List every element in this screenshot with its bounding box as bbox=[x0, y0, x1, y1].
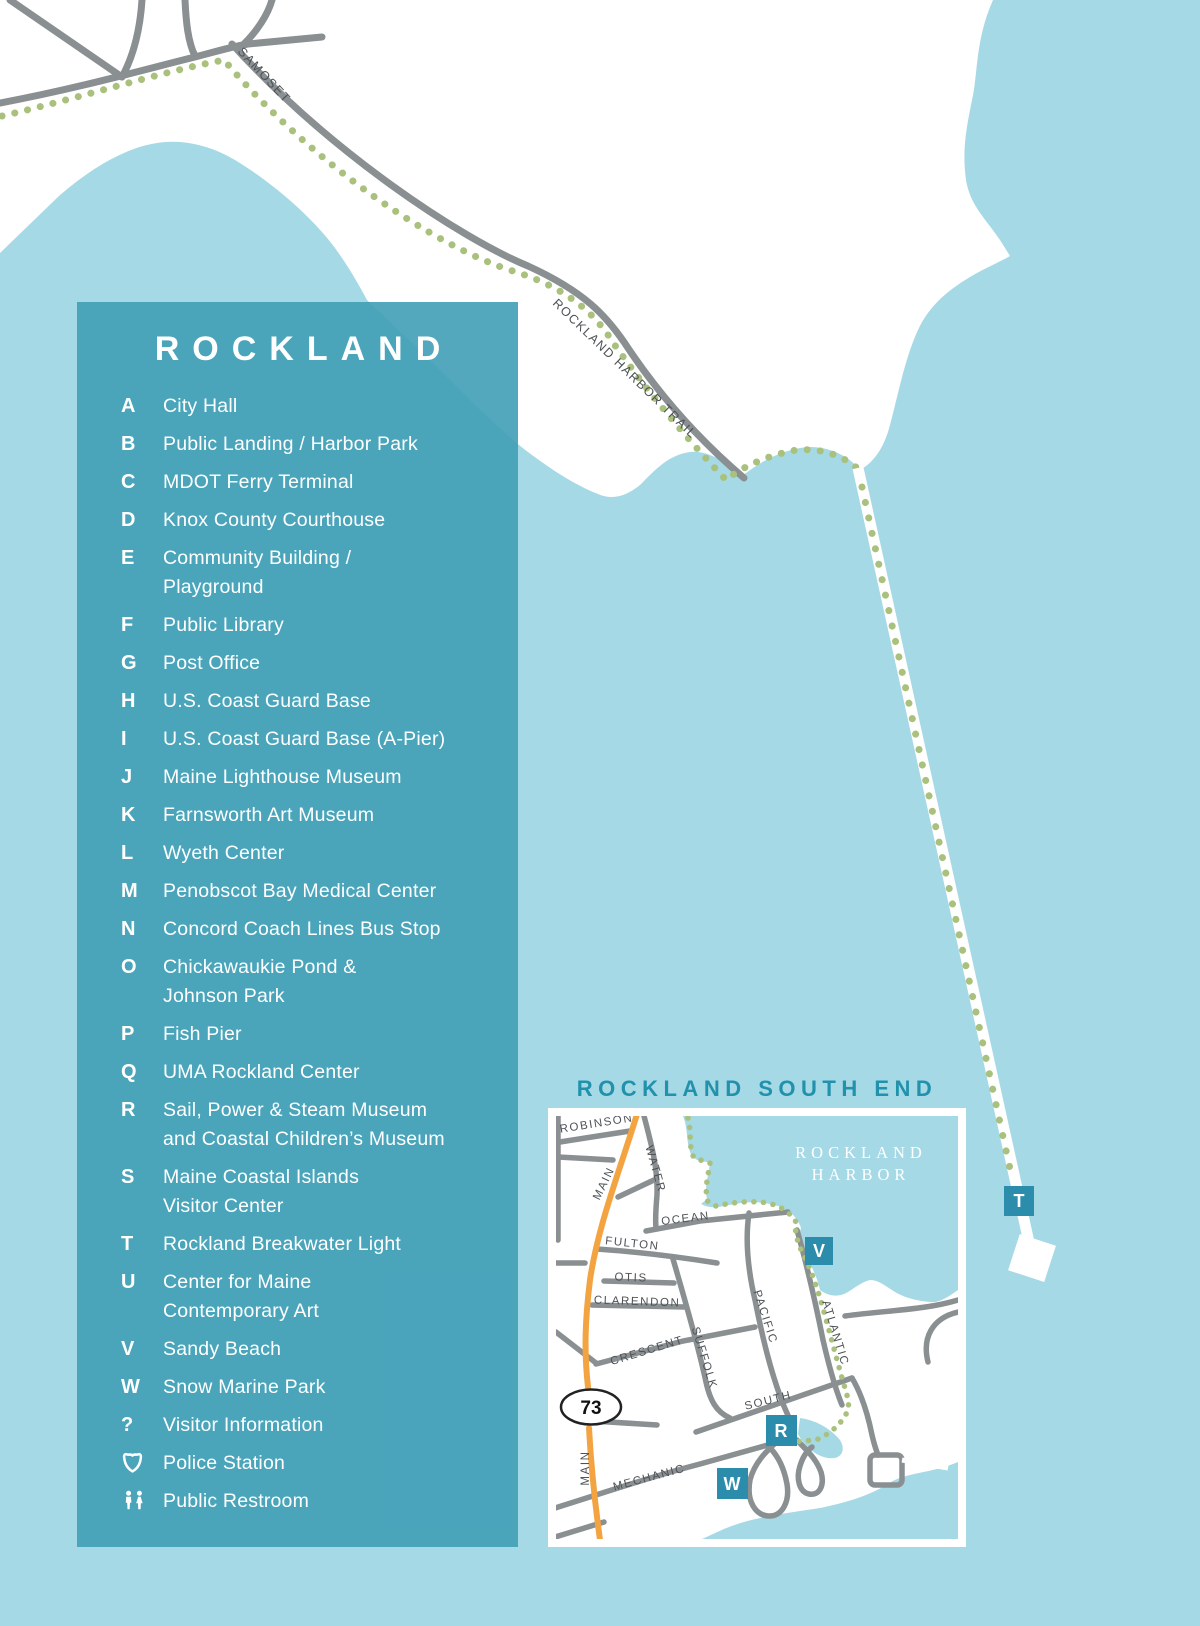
legend-item-label: Visitor Information bbox=[163, 1411, 324, 1440]
legend-item-label: Penobscot Bay Medical Center bbox=[163, 877, 436, 906]
legend-item-label: Center for Maine Contemporary Art bbox=[163, 1268, 319, 1326]
legend-item: CMDOT Ferry Terminal bbox=[121, 468, 502, 497]
legend-item-key: N bbox=[121, 915, 163, 944]
legend-item-key: T bbox=[121, 1230, 163, 1259]
svg-text:73: 73 bbox=[580, 1398, 601, 1419]
marker-snow-marine-park: W bbox=[717, 1468, 748, 1499]
legend-item: GPost Office bbox=[121, 649, 502, 678]
svg-text:V: V bbox=[813, 1241, 825, 1261]
police-shield-icon bbox=[121, 1452, 144, 1475]
rockland-map-page: SAMOSET ROCKLAND HARBOR TRAIL T ROCKLAND… bbox=[0, 0, 1200, 1626]
legend-item-key: ? bbox=[121, 1411, 163, 1440]
legend-panel: ROCKLAND ACity HallBPublic Landing / Har… bbox=[77, 302, 518, 1547]
inset-title: ROCKLAND SOUTH END bbox=[577, 1076, 938, 1101]
legend-item-key: I bbox=[121, 725, 163, 754]
legend-item: DKnox County Courthouse bbox=[121, 506, 502, 535]
legend-item-key: M bbox=[121, 877, 163, 906]
street-otis: OTIS bbox=[614, 1271, 648, 1284]
legend-item-label: Sandy Beach bbox=[163, 1335, 281, 1364]
legend-item-label: Public Restroom bbox=[163, 1487, 309, 1516]
legend-item-key: E bbox=[121, 544, 163, 573]
legend-item-key: F bbox=[121, 611, 163, 640]
legend-item-key: R bbox=[121, 1096, 163, 1125]
legend-item: KFarnsworth Art Museum bbox=[121, 801, 502, 830]
street-main-lower: MAIN bbox=[580, 1450, 592, 1485]
restroom-icon bbox=[121, 1490, 147, 1510]
legend-item: MPenobscot Bay Medical Center bbox=[121, 877, 502, 906]
inset-harbor-label-line2: HARBOR bbox=[812, 1165, 911, 1184]
police-key bbox=[121, 1449, 163, 1475]
marker-breakwater-light: T bbox=[1004, 1186, 1034, 1216]
legend-item: ECommunity Building / Playground bbox=[121, 544, 502, 602]
legend-item-label: MDOT Ferry Terminal bbox=[163, 468, 354, 497]
legend-item-label: Fish Pier bbox=[163, 1020, 242, 1049]
inset-harbor-label-line1: ROCKLAND bbox=[795, 1143, 927, 1162]
legend-item-list: ACity HallBPublic Landing / Harbor ParkC… bbox=[77, 392, 518, 1516]
legend-item-label: Public Library bbox=[163, 611, 284, 640]
svg-text:T: T bbox=[1014, 1191, 1025, 1211]
legend-item-label: U.S. Coast Guard Base bbox=[163, 687, 371, 716]
legend-item-key: W bbox=[121, 1373, 163, 1402]
legend-item: BPublic Landing / Harbor Park bbox=[121, 430, 502, 459]
legend-item: LWyeth Center bbox=[121, 839, 502, 868]
restroom-key bbox=[121, 1487, 163, 1510]
legend-item: FPublic Library bbox=[121, 611, 502, 640]
svg-text:W: W bbox=[724, 1474, 741, 1494]
legend-item-key: Q bbox=[121, 1058, 163, 1087]
legend-item-label: Rockland Breakwater Light bbox=[163, 1230, 401, 1259]
legend-item: OChickawaukie Pond & Johnson Park bbox=[121, 953, 502, 1011]
legend-item-key: H bbox=[121, 687, 163, 716]
legend-item-key: L bbox=[121, 839, 163, 868]
legend-item: JMaine Lighthouse Museum bbox=[121, 763, 502, 792]
legend-item-label: Sail, Power & Steam Museum and Coastal C… bbox=[163, 1096, 445, 1154]
legend-item-key: P bbox=[121, 1020, 163, 1049]
legend-item-key: S bbox=[121, 1163, 163, 1192]
legend-item: Public Restroom bbox=[121, 1487, 502, 1516]
legend-item-label: Knox County Courthouse bbox=[163, 506, 385, 535]
legend-item: Police Station bbox=[121, 1449, 502, 1478]
legend-item: TRockland Breakwater Light bbox=[121, 1230, 502, 1259]
legend-item-key: B bbox=[121, 430, 163, 459]
marker-sandy-beach: V bbox=[805, 1237, 833, 1265]
legend-item-label: UMA Rockland Center bbox=[163, 1058, 360, 1087]
legend-item-key: C bbox=[121, 468, 163, 497]
legend-item-label: Community Building / Playground bbox=[163, 544, 351, 602]
legend-item: ACity Hall bbox=[121, 392, 502, 421]
legend-item-label: Wyeth Center bbox=[163, 839, 284, 868]
legend-item-label: Chickawaukie Pond & Johnson Park bbox=[163, 953, 357, 1011]
legend-item-key: K bbox=[121, 801, 163, 830]
legend-item: PFish Pier bbox=[121, 1020, 502, 1049]
legend-item-key: D bbox=[121, 506, 163, 535]
legend-item: UCenter for Maine Contemporary Art bbox=[121, 1268, 502, 1326]
legend-item-label: Snow Marine Park bbox=[163, 1373, 326, 1402]
legend-item-key: J bbox=[121, 763, 163, 792]
svg-text:R: R bbox=[775, 1421, 788, 1441]
legend-item-label: Public Landing / Harbor Park bbox=[163, 430, 418, 459]
marker-sail-power-museum: R bbox=[766, 1415, 797, 1446]
legend-item-label: Police Station bbox=[163, 1449, 285, 1478]
legend-item: NConcord Coach Lines Bus Stop bbox=[121, 915, 502, 944]
legend-title: ROCKLAND bbox=[77, 328, 518, 370]
legend-item-key: A bbox=[121, 392, 163, 421]
legend-item: ?Visitor Information bbox=[121, 1411, 502, 1440]
legend-item-label: Post Office bbox=[163, 649, 260, 678]
legend-item-label: Maine Lighthouse Museum bbox=[163, 763, 402, 792]
route-73-shield: 73 bbox=[561, 1390, 621, 1425]
legend-item: VSandy Beach bbox=[121, 1335, 502, 1364]
legend-item-key: G bbox=[121, 649, 163, 678]
legend-item-label: Maine Coastal Islands Visitor Center bbox=[163, 1163, 359, 1221]
legend-item-label: Farnsworth Art Museum bbox=[163, 801, 374, 830]
legend-item-label: City Hall bbox=[163, 392, 237, 421]
legend-item-label: Concord Coach Lines Bus Stop bbox=[163, 915, 441, 944]
legend-item: HU.S. Coast Guard Base bbox=[121, 687, 502, 716]
legend-item: QUMA Rockland Center bbox=[121, 1058, 502, 1087]
legend-item: WSnow Marine Park bbox=[121, 1373, 502, 1402]
legend-item: SMaine Coastal Islands Visitor Center bbox=[121, 1163, 502, 1221]
legend-item: RSail, Power & Steam Museum and Coastal … bbox=[121, 1096, 502, 1154]
legend-item-key: V bbox=[121, 1335, 163, 1364]
legend-item: IU.S. Coast Guard Base (A-Pier) bbox=[121, 725, 502, 754]
legend-item-key: O bbox=[121, 953, 163, 982]
legend-item-key: U bbox=[121, 1268, 163, 1297]
legend-item-label: U.S. Coast Guard Base (A-Pier) bbox=[163, 725, 445, 754]
